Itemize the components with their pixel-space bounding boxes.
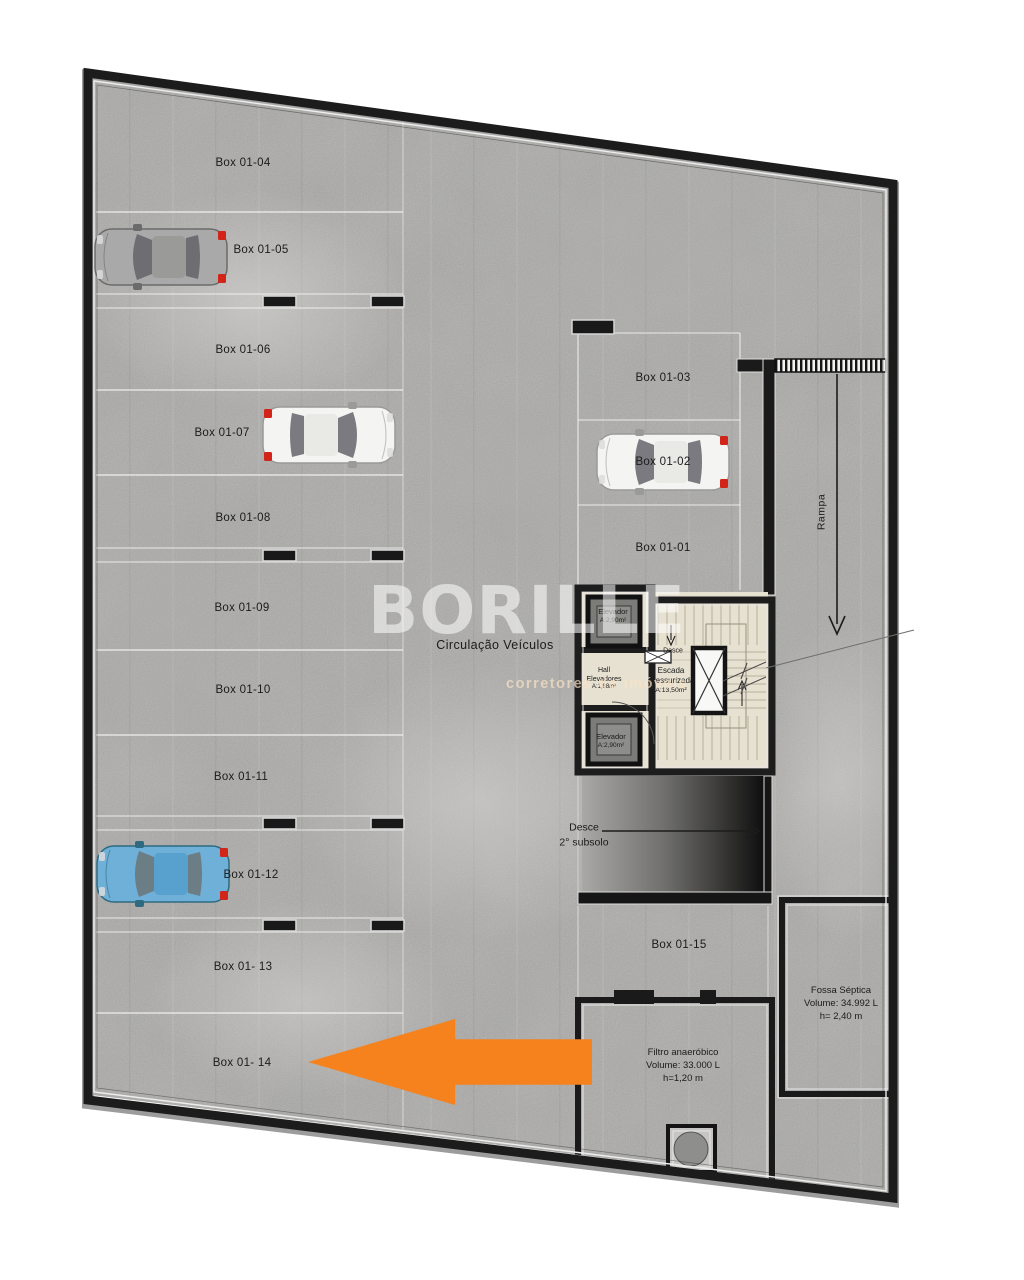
stall-label-01-03: Box 01-03 [635,371,690,385]
filtro-line2: Volume: 33.000 L [646,1060,720,1073]
fossa-label: Fossa Séptica Volume: 34.992 L h= 2,40 m [804,985,878,1023]
fossa-line1: Fossa Séptica [804,985,878,998]
subsolo-line2: 2° subsolo [559,835,608,850]
elevator-bottom-name: Elevador [596,732,626,742]
stall-label-01-07: Box 01-07 [194,426,249,440]
watermark-tagline: corretores de imóveis [506,676,688,692]
stall-label-01-02: Box 01-02 [635,455,690,469]
stall-label-01-01: Box 01-01 [635,541,690,555]
stall-label-01-12: Box 01-12 [223,868,278,882]
elevator-bottom-area: A:2,90m² [596,742,626,750]
ramp-arrow [829,374,845,634]
stall-label-01-10: Box 01-10 [215,683,270,697]
stall-label-01-09: Box 01-09 [214,601,269,615]
section-cut-marks [723,630,914,696]
stall-label-01-05: Box 01-05 [233,243,288,257]
garage-floor-plan: Box 01-04 Box 01-05 Box 01-06 Box 01-07 … [0,0,1024,1280]
subsolo-label: Desce 2° subsolo [559,820,608,849]
watermark-brand: BORILLE [368,572,686,649]
ramp-label: Rampa [815,494,828,530]
subsolo-line1: Desce [559,820,608,835]
stall-label-01-15: Box 01-15 [651,938,706,952]
stall-label-01-13: Box 01- 13 [214,960,273,974]
subsolo-arrow [602,824,759,838]
hall-line1: Hall [586,666,621,675]
stall-label-01-08: Box 01-08 [215,511,270,525]
stall-label-01-11: Box 01-11 [214,770,268,784]
filtro-label: Filtro anaeróbico Volume: 33.000 L h=1,2… [646,1047,720,1085]
filtro-line1: Filtro anaeróbico [646,1047,720,1060]
fossa-line2: Volume: 34.992 L [804,998,878,1011]
fossa-line3: h= 2,40 m [804,1010,878,1023]
stall-label-01-06: Box 01-06 [215,343,270,357]
stall-label-01-14: Box 01- 14 [213,1056,272,1070]
stall-label-01-04: Box 01-04 [215,156,270,170]
filtro-line3: h=1,20 m [646,1072,720,1085]
elevator-bottom-label: Elevador A:2,90m² [596,732,626,750]
